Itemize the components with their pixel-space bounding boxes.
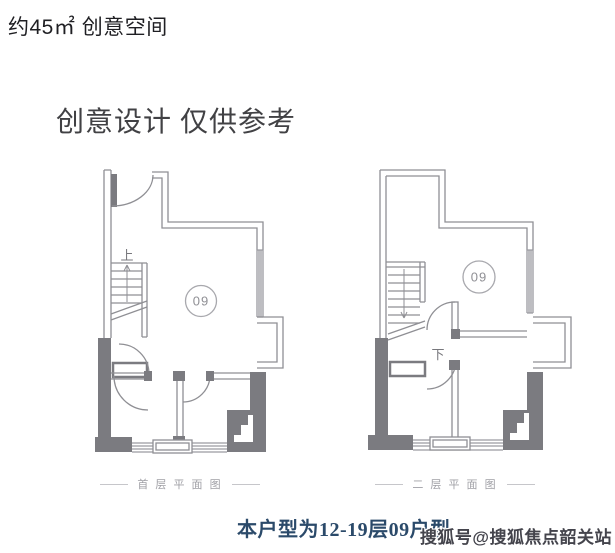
thick-wall-corner <box>95 437 132 452</box>
caption-text: 首 层 平 面 图 <box>137 476 222 492</box>
watermark-text: 搜狐号@搜狐焦点韶关站 <box>420 523 612 548</box>
wall-cap <box>206 371 214 381</box>
second-floor-caption: 二 层 平 面 图 <box>375 477 535 491</box>
wall-cap <box>449 360 460 370</box>
stairs-up-label: 上 <box>120 248 133 263</box>
wall-cap <box>144 371 152 381</box>
wall-top-right <box>152 172 263 250</box>
first-floor-plan: 09 上 <box>95 170 283 453</box>
partition-wall-right <box>210 373 250 379</box>
bath-door-arc-left <box>114 376 148 410</box>
window-right <box>527 250 533 313</box>
understair-closet <box>390 362 425 376</box>
unit-number-label: 09 <box>193 294 209 309</box>
second-floor-plan: 09 下 <box>368 170 571 450</box>
unit-note: 本户型为12-19层09户型 <box>237 513 451 542</box>
caption-line <box>100 484 128 485</box>
wall-left <box>104 170 111 338</box>
stairs-break-line <box>388 321 425 340</box>
bay-window <box>257 317 283 368</box>
understair-closet <box>113 363 147 377</box>
room-door-arc <box>427 302 455 330</box>
stairs-guide-arrow <box>401 269 407 318</box>
thick-wall-left <box>375 338 388 435</box>
caption-text: 二 层 平 面 图 <box>412 476 497 492</box>
stairs-down-label: 下 <box>431 347 444 362</box>
bath-door-arc-right <box>183 375 210 402</box>
unit-number-label: 09 <box>471 270 487 285</box>
wall-cap <box>451 329 460 339</box>
caption-line <box>375 484 403 485</box>
window-bottom-box-inner <box>156 443 189 450</box>
thick-wall-corner <box>368 435 413 450</box>
partition-wall-center <box>177 381 183 436</box>
bay-window <box>533 317 571 368</box>
wall-cap <box>173 371 185 381</box>
wall-top <box>380 170 533 250</box>
caption-line <box>232 484 260 485</box>
entrance-door-leaf <box>111 174 117 207</box>
stairs-top-wall <box>386 262 425 267</box>
partition-wall-vertical <box>452 370 458 440</box>
caption-line <box>507 484 535 485</box>
partition-wall-horizontal <box>455 331 527 337</box>
floor-plan-drawing: 09 上 09 <box>0 0 615 553</box>
thick-wall-left <box>98 338 111 437</box>
wall-left <box>380 170 386 338</box>
window-right <box>257 250 263 317</box>
window-bottom-box-inner <box>433 440 467 447</box>
stairs-side-wall <box>142 263 147 337</box>
first-floor-caption: 首 层 平 面 图 <box>100 477 260 491</box>
entrance-door-arc <box>112 175 153 206</box>
stairs-side-wall <box>420 262 425 302</box>
room-door-leaf <box>452 302 458 330</box>
